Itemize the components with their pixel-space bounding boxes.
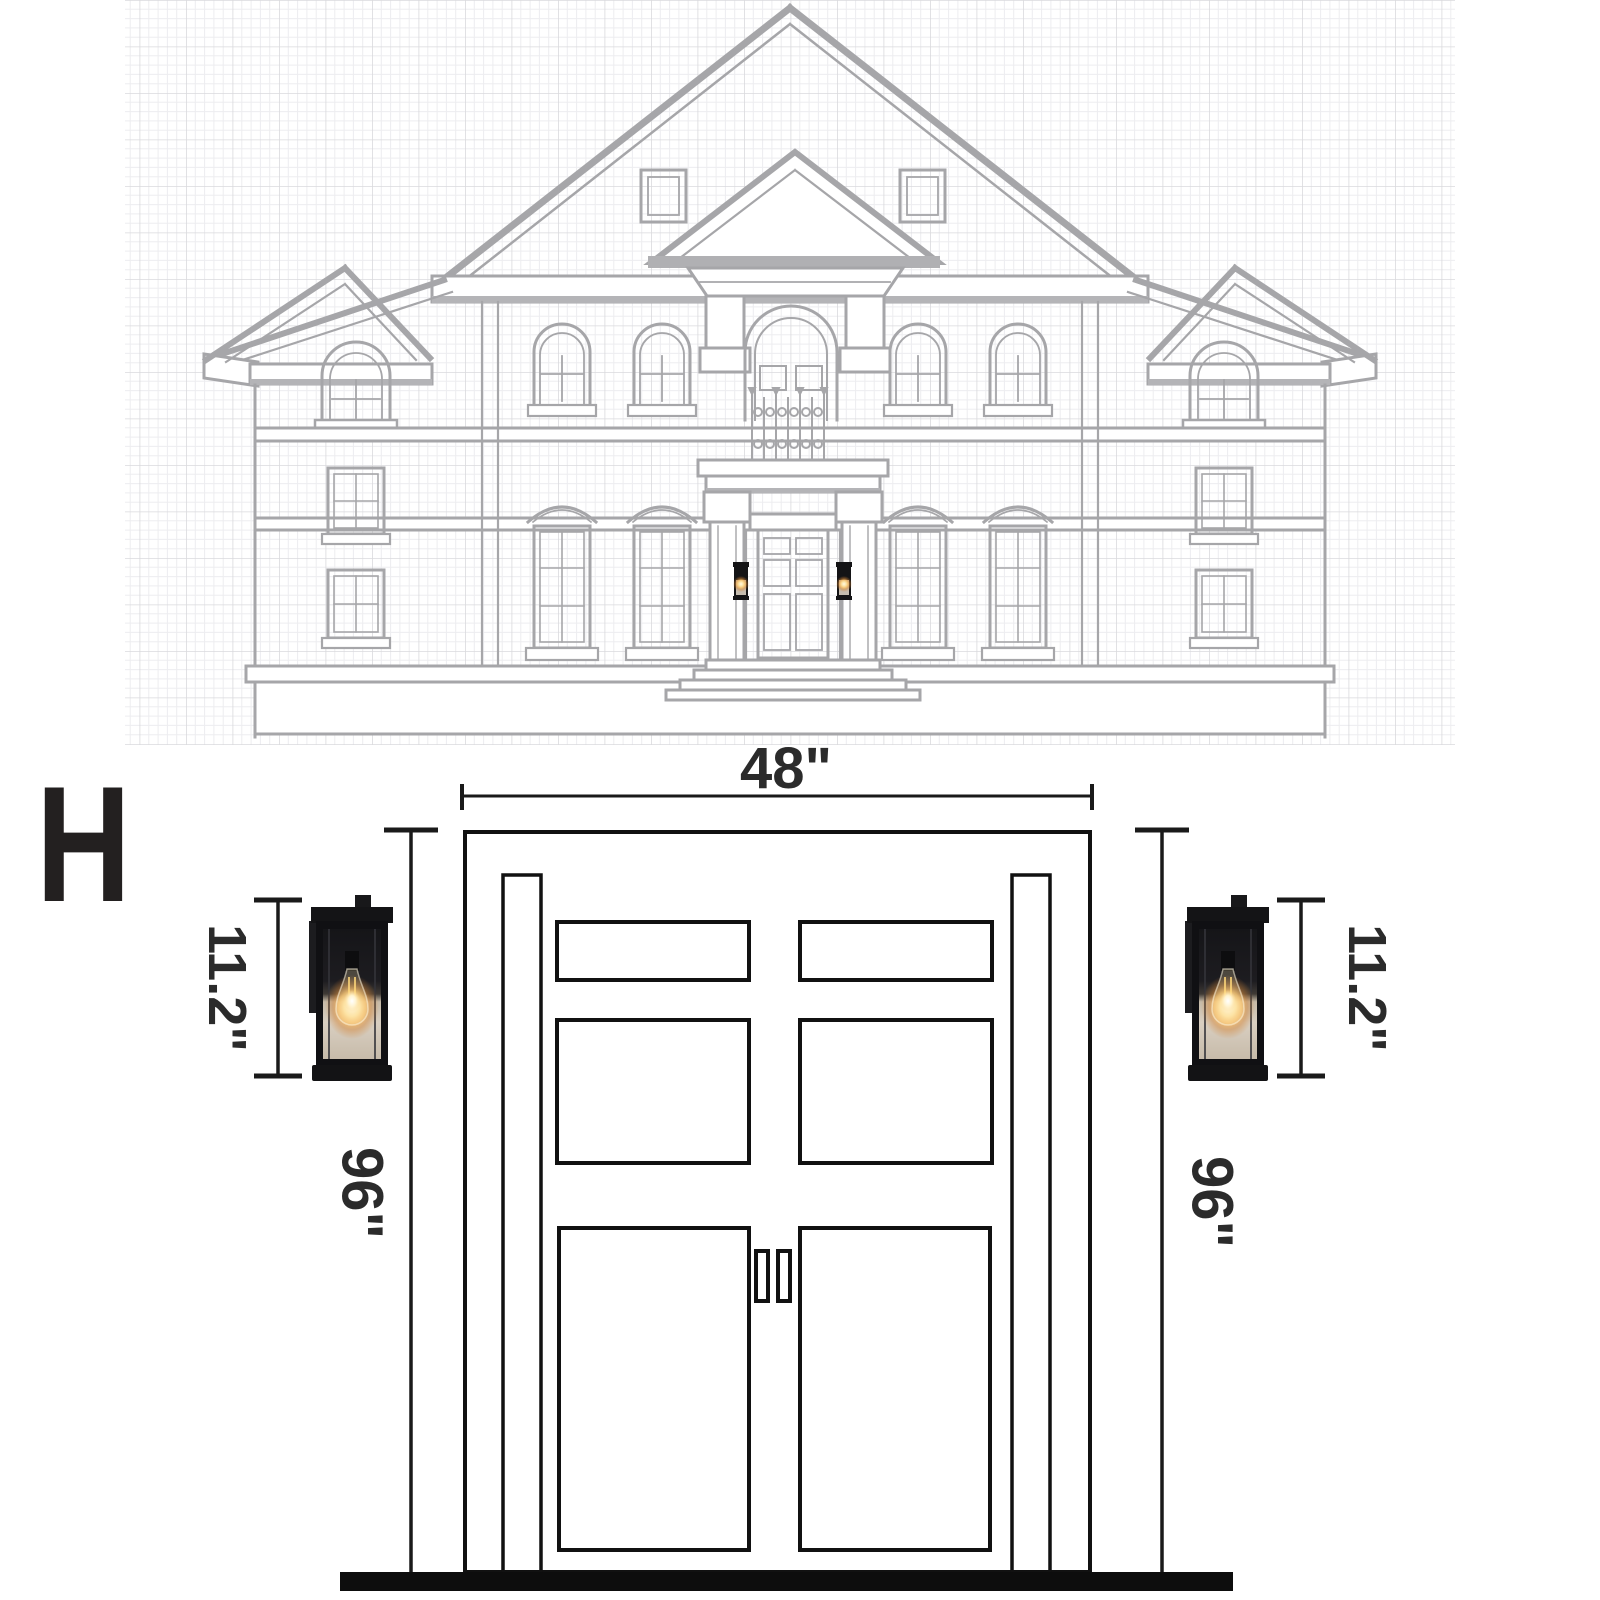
door-width-label: 48"	[740, 736, 832, 801]
illustration-canvas: H 48"	[0, 0, 1600, 1600]
dimension-diagram: H 48"	[36, 736, 1397, 1591]
blueprint-panel	[125, 0, 1455, 745]
sconce-height-dimension-left	[254, 900, 302, 1076]
door-height-label-left: 96"	[330, 1147, 395, 1239]
sconce-photo-right	[1185, 895, 1269, 1081]
sconce-height-label-right: 11.2"	[1337, 924, 1397, 1052]
door-handles	[756, 1251, 790, 1301]
product-dimension-illustration: H 48"	[0, 0, 1600, 1600]
entry-sconce-right	[836, 562, 852, 600]
door-height-label-right: 96"	[1180, 1156, 1245, 1248]
door-stile-left	[503, 875, 541, 1572]
threshold-bar	[340, 1572, 1233, 1591]
entry-sconce-left	[733, 562, 749, 600]
sconce-photo-left	[309, 895, 393, 1081]
door-leaf-panels	[557, 922, 992, 1550]
door-frame	[465, 832, 1090, 1572]
variant-letter: H	[36, 752, 131, 936]
door-stile-right	[1012, 875, 1050, 1572]
sconce-height-dimension-right	[1277, 900, 1325, 1076]
sconce-height-label-left: 11.2"	[197, 924, 257, 1052]
